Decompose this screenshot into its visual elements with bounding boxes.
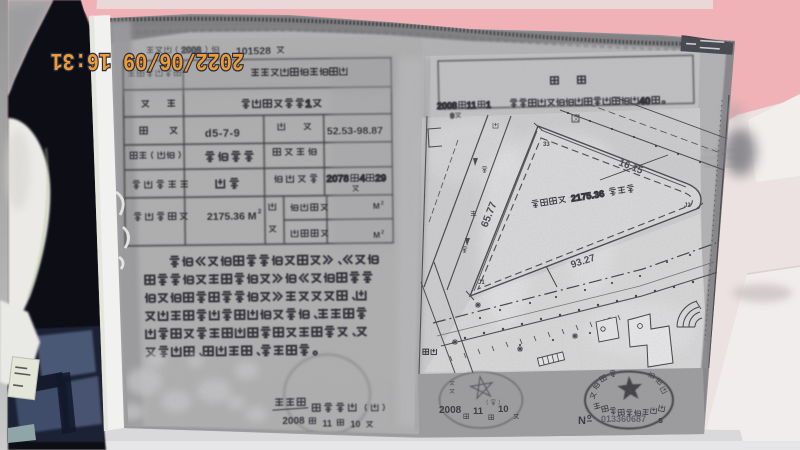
svg-text:2022/06/09 16:31: 2022/06/09 16:31	[50, 46, 244, 73]
